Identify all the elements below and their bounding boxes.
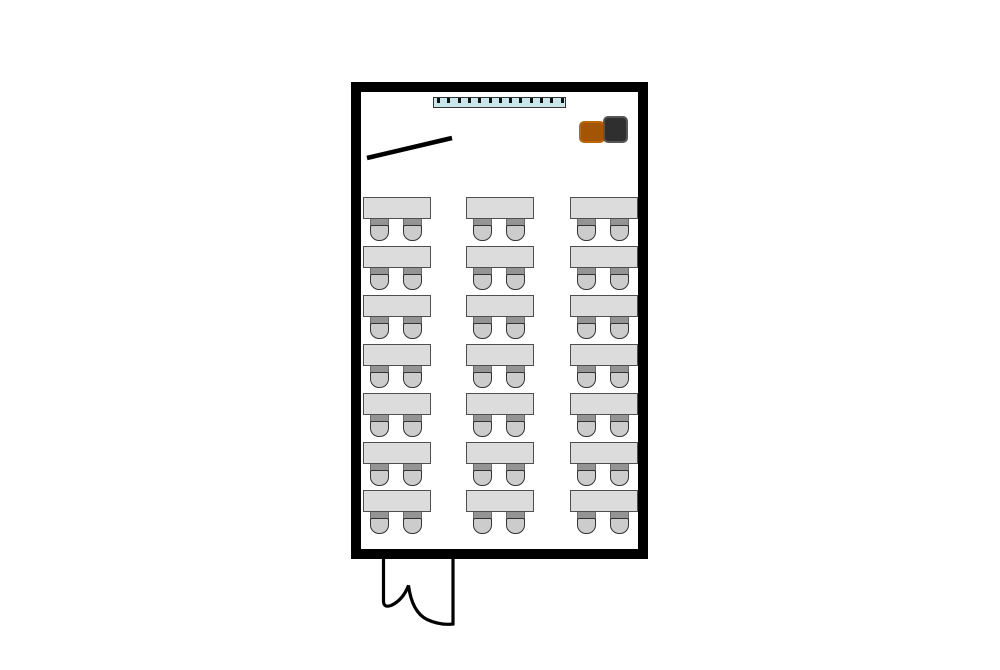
student-desk[interactable] — [363, 442, 431, 464]
student-desk[interactable] — [466, 295, 534, 317]
whiteboard[interactable] — [433, 97, 566, 108]
teacher-chair-orange[interactable] — [579, 121, 605, 143]
student-desk[interactable] — [466, 442, 534, 464]
chair-seat[interactable] — [506, 518, 525, 534]
chair-seat[interactable] — [403, 323, 422, 339]
floor-plan-canvas — [0, 0, 1000, 670]
student-desk-unit — [466, 246, 534, 290]
whiteboard-marker-tick — [550, 98, 553, 103]
chair-seat[interactable] — [610, 470, 629, 486]
chair-seat[interactable] — [370, 323, 389, 339]
chair-seat[interactable] — [473, 274, 492, 290]
chair-seat[interactable] — [577, 225, 596, 241]
student-desk[interactable] — [363, 246, 431, 268]
student-desk-unit — [466, 295, 534, 339]
student-desk-unit — [363, 246, 431, 290]
chair-seat[interactable] — [577, 372, 596, 388]
student-desk[interactable] — [466, 490, 534, 512]
student-desk[interactable] — [363, 393, 431, 415]
chair-seat[interactable] — [473, 518, 492, 534]
chair-seat[interactable] — [506, 323, 525, 339]
chair-seat[interactable] — [577, 274, 596, 290]
door[interactable] — [384, 558, 454, 624]
chair-seat[interactable] — [403, 421, 422, 437]
chair-seat[interactable] — [506, 274, 525, 290]
chair-seat[interactable] — [506, 470, 525, 486]
student-desk[interactable] — [570, 246, 638, 268]
student-desk[interactable] — [570, 490, 638, 512]
whiteboard-marker-tick — [561, 98, 564, 103]
student-desk-unit — [363, 295, 431, 339]
whiteboard-marker-tick — [499, 98, 502, 103]
chair-seat[interactable] — [473, 372, 492, 388]
student-desk-unit — [466, 393, 534, 437]
student-desk[interactable] — [363, 295, 431, 317]
student-desk-unit — [570, 344, 638, 388]
whiteboard-marker-tick — [447, 98, 450, 103]
chair-seat[interactable] — [577, 323, 596, 339]
chair-seat[interactable] — [473, 421, 492, 437]
whiteboard-marker-tick — [478, 98, 481, 103]
student-desk[interactable] — [570, 393, 638, 415]
teacher-chair-black[interactable] — [603, 116, 628, 143]
student-desk-unit — [466, 490, 534, 534]
student-desk[interactable] — [570, 442, 638, 464]
chair-seat[interactable] — [577, 421, 596, 437]
chair-seat[interactable] — [370, 470, 389, 486]
chair-seat[interactable] — [403, 518, 422, 534]
student-desk-unit — [363, 197, 431, 241]
student-desk[interactable] — [466, 344, 534, 366]
whiteboard-marker-tick — [468, 98, 471, 103]
chair-seat[interactable] — [577, 518, 596, 534]
chair-seat[interactable] — [610, 518, 629, 534]
student-desk[interactable] — [570, 344, 638, 366]
student-desk[interactable] — [466, 393, 534, 415]
chair-seat[interactable] — [610, 421, 629, 437]
chair-seat[interactable] — [473, 470, 492, 486]
student-desk-unit — [466, 442, 534, 486]
student-desk-unit — [570, 197, 638, 241]
chair-seat[interactable] — [473, 323, 492, 339]
student-desk-unit — [570, 442, 638, 486]
student-desk-unit — [466, 197, 534, 241]
chair-seat[interactable] — [577, 470, 596, 486]
whiteboard-marker-tick — [519, 98, 522, 103]
student-desk[interactable] — [363, 197, 431, 219]
chair-seat[interactable] — [370, 421, 389, 437]
chair-seat[interactable] — [370, 518, 389, 534]
chair-seat[interactable] — [370, 372, 389, 388]
whiteboard-marker-tick — [509, 98, 512, 103]
chair-seat[interactable] — [610, 225, 629, 241]
chair-seat[interactable] — [610, 323, 629, 339]
chair-seat[interactable] — [370, 274, 389, 290]
chair-seat[interactable] — [610, 274, 629, 290]
chair-seat[interactable] — [370, 225, 389, 241]
student-desk-unit — [363, 442, 431, 486]
student-desk-unit — [570, 295, 638, 339]
chair-seat[interactable] — [506, 225, 525, 241]
whiteboard-marker-tick — [530, 98, 533, 103]
student-desk-unit — [570, 393, 638, 437]
student-desk-unit — [466, 344, 534, 388]
student-desk-unit — [570, 490, 638, 534]
chair-seat[interactable] — [506, 421, 525, 437]
student-desk[interactable] — [363, 490, 431, 512]
chair-seat[interactable] — [473, 225, 492, 241]
student-desk-unit — [363, 490, 431, 534]
chair-seat[interactable] — [506, 372, 525, 388]
whiteboard-marker-tick — [458, 98, 461, 103]
chair-seat[interactable] — [610, 372, 629, 388]
student-desk-unit — [363, 344, 431, 388]
student-desk-unit — [570, 246, 638, 290]
chair-seat[interactable] — [403, 225, 422, 241]
whiteboard-marker-tick — [489, 98, 492, 103]
student-desk-unit — [363, 393, 431, 437]
student-desk[interactable] — [466, 246, 534, 268]
whiteboard-marker-tick — [437, 98, 440, 103]
student-desk[interactable] — [570, 295, 638, 317]
whiteboard-marker-tick — [540, 98, 543, 103]
student-desk[interactable] — [570, 197, 638, 219]
student-desk[interactable] — [363, 344, 431, 366]
chair-seat[interactable] — [403, 274, 422, 290]
student-desk[interactable] — [466, 197, 534, 219]
chair-seat[interactable] — [403, 470, 422, 486]
chair-seat[interactable] — [403, 372, 422, 388]
